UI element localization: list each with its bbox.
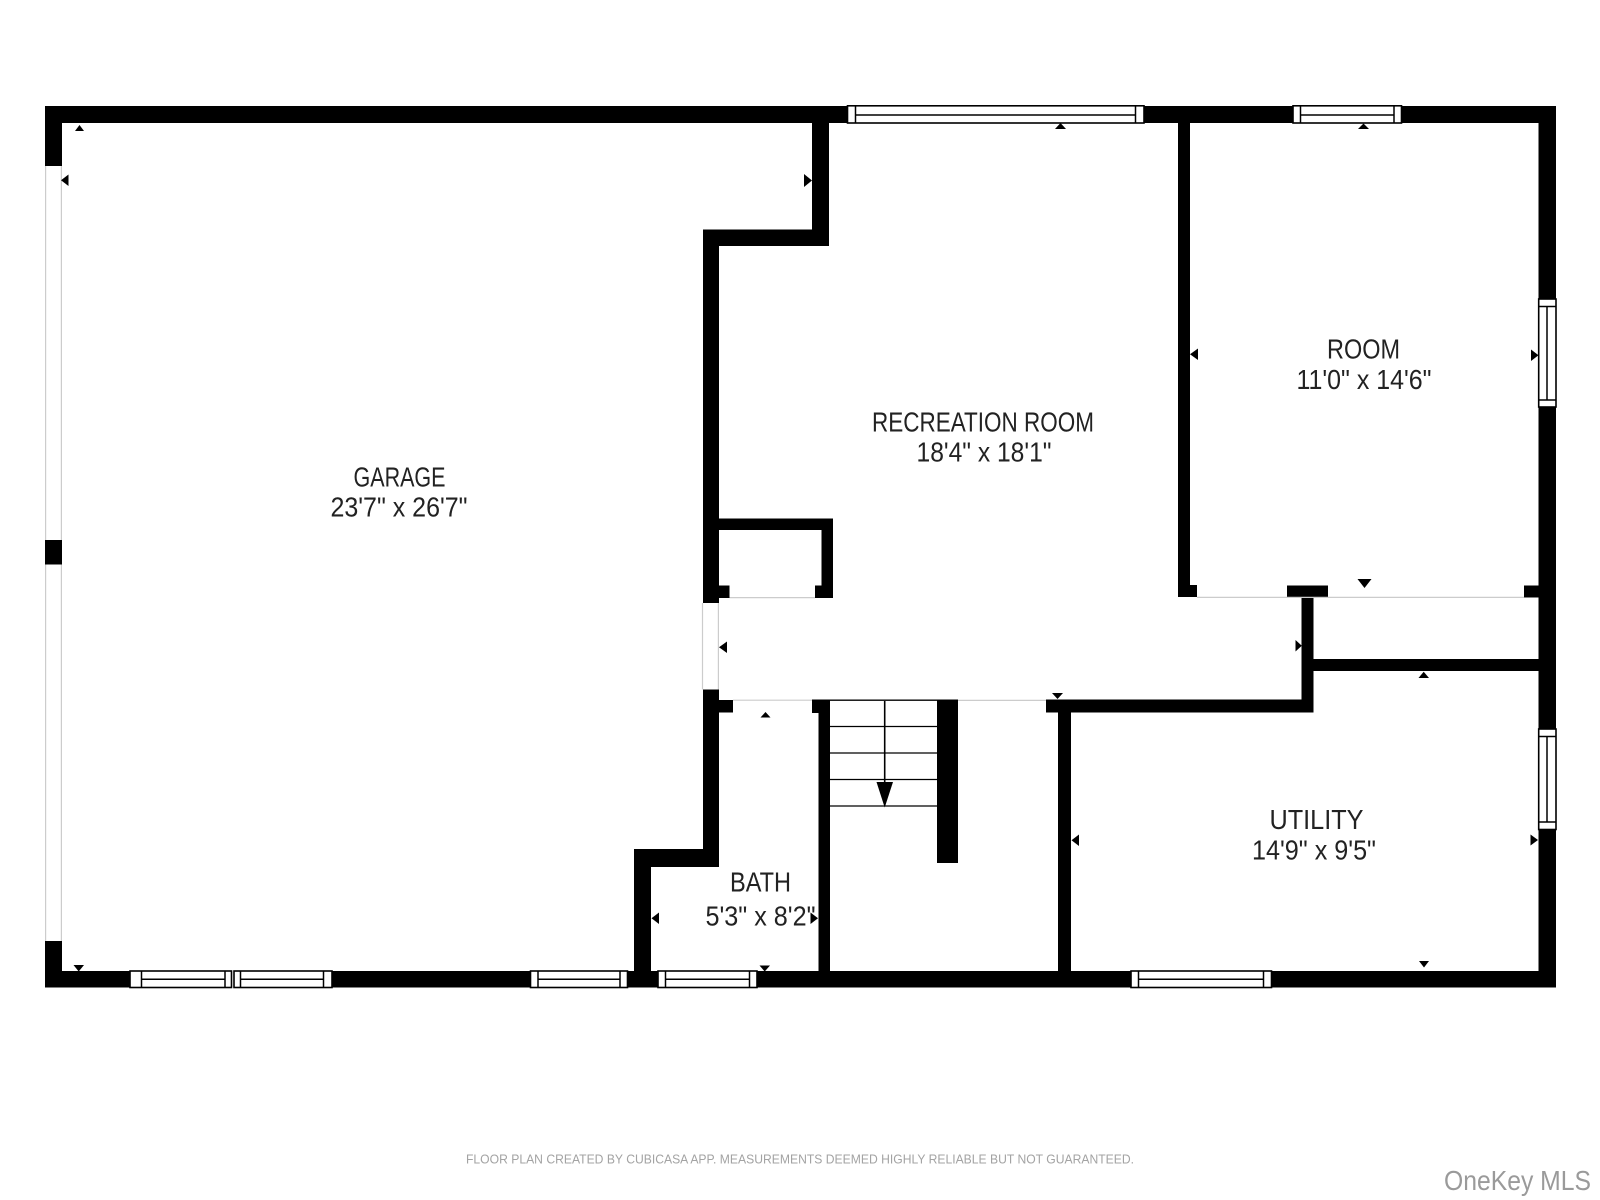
svg-text:BATH: BATH: [730, 867, 791, 898]
svg-text:ROOM: ROOM: [1327, 333, 1400, 364]
svg-text:RECREATION ROOM: RECREATION ROOM: [872, 407, 1094, 438]
svg-text:GARAGE: GARAGE: [354, 462, 446, 493]
svg-text:14'9" x 9'5": 14'9" x 9'5": [1252, 835, 1376, 866]
svg-text:23'7" x 26'7": 23'7" x 26'7": [331, 492, 468, 523]
svg-text:5'3" x 8'2": 5'3" x 8'2": [706, 901, 816, 932]
svg-text:11'0" x 14'6": 11'0" x 14'6": [1297, 364, 1432, 395]
svg-text:18'4" x 18'1": 18'4" x 18'1": [917, 437, 1052, 468]
svg-text:OneKey MLS: OneKey MLS: [1444, 1165, 1591, 1196]
svg-text:UTILITY: UTILITY: [1270, 804, 1364, 835]
svg-text:FLOOR PLAN CREATED BY CUBICASA: FLOOR PLAN CREATED BY CUBICASA APP. MEAS…: [466, 1153, 1134, 1167]
